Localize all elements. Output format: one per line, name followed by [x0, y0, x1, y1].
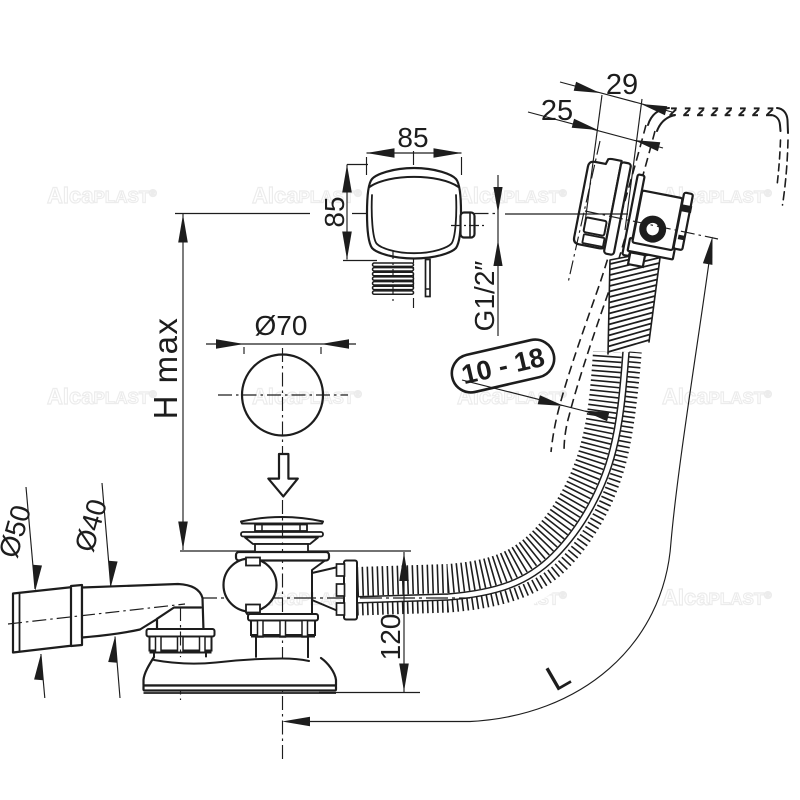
svg-text:29: 29 — [606, 69, 638, 101]
svg-text:25: 25 — [541, 95, 573, 127]
svg-text:AlcaPLAST®: AlcaPLAST® — [662, 384, 772, 409]
svg-text:AlcaPLAST®: AlcaPLAST® — [662, 585, 772, 610]
svg-text:AlcaPLAST®: AlcaPLAST® — [47, 384, 157, 409]
svg-text:H max: H max — [147, 317, 184, 420]
svg-text:AlcaPLAST®: AlcaPLAST® — [457, 183, 567, 208]
svg-text:85: 85 — [319, 196, 350, 227]
svg-text:AlcaPLAST®: AlcaPLAST® — [252, 384, 362, 409]
svg-text:AlcaPLAST®: AlcaPLAST® — [47, 183, 157, 208]
svg-text:120: 120 — [375, 614, 406, 661]
svg-text:G1/2″: G1/2″ — [469, 261, 500, 332]
svg-text:85: 85 — [397, 122, 428, 153]
svg-text:Ø70: Ø70 — [255, 310, 308, 341]
